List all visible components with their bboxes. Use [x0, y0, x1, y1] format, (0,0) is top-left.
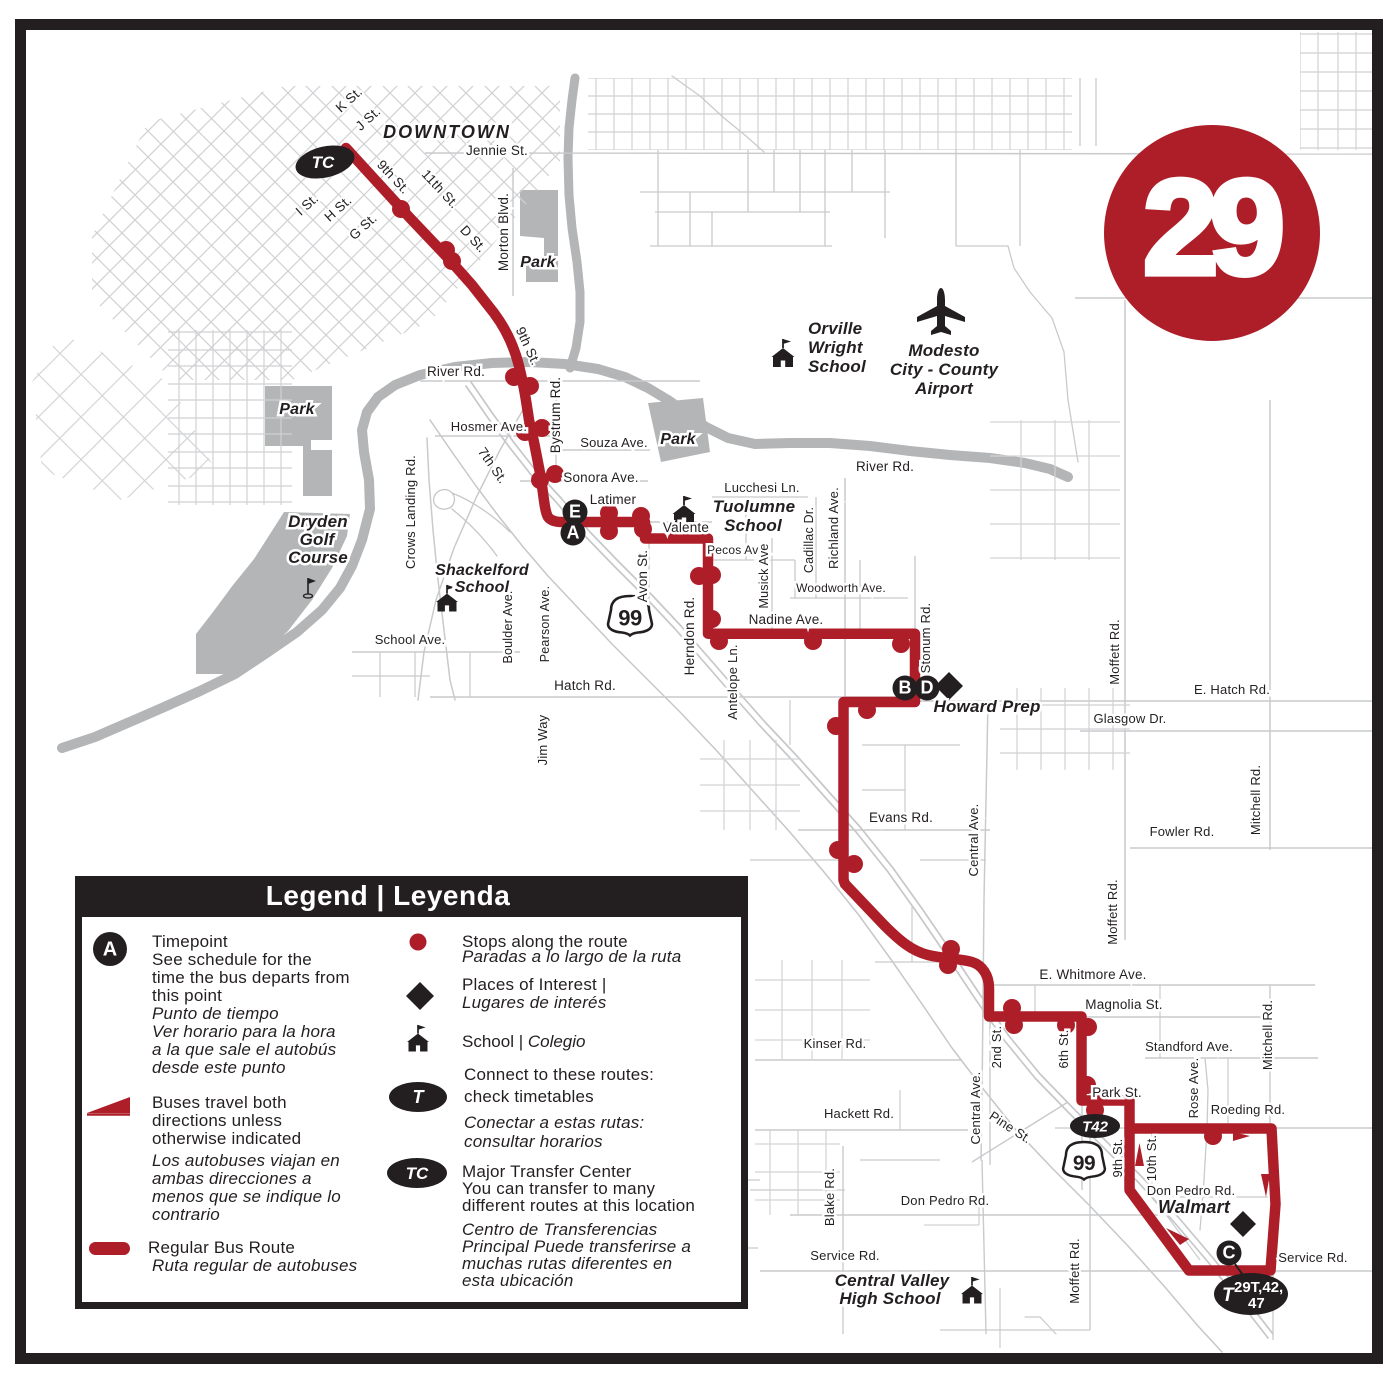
svg-text:Nadine Ave.: Nadine Ave.	[749, 612, 824, 627]
svg-text:Hosmer Ave.: Hosmer Ave.	[451, 419, 527, 434]
svg-text:Central Valley: Central Valley	[835, 1271, 951, 1290]
svg-text:Hackett Rd.: Hackett Rd.	[824, 1106, 894, 1121]
svg-text:Connect to these routes:: Connect to these routes:	[464, 1065, 654, 1084]
svg-text:A: A	[567, 522, 580, 542]
svg-text:Orville: Orville	[808, 319, 862, 338]
svg-text:Roeding Rd.: Roeding Rd.	[1211, 1102, 1285, 1117]
svg-text:Park: Park	[520, 254, 556, 271]
svg-text:directions unless: directions unless	[152, 1111, 282, 1130]
svg-text:Rose Ave.: Rose Ave.	[1186, 1058, 1201, 1119]
svg-text:check timetables: check timetables	[464, 1087, 594, 1106]
svg-text:otherwise indicated: otherwise indicated	[152, 1129, 301, 1148]
svg-text:High School: High School	[839, 1289, 941, 1308]
svg-text:Central Ave.: Central Ave.	[966, 804, 981, 877]
svg-text:29T,42,: 29T,42,	[1234, 1279, 1283, 1296]
svg-text:City - County: City - County	[890, 360, 1000, 379]
svg-text:Service Rd.: Service Rd.	[1278, 1250, 1347, 1265]
svg-text:School: School	[724, 516, 783, 535]
svg-text:Stonum Rd.: Stonum Rd.	[918, 603, 933, 674]
svg-text:Hatch Rd.: Hatch Rd.	[554, 678, 616, 693]
svg-text:Los autobuses viajan en: Los autobuses viajan en	[152, 1151, 340, 1170]
svg-text:Fowler Rd.: Fowler Rd.	[1150, 824, 1215, 839]
svg-text:contrario: contrario	[152, 1205, 220, 1224]
svg-text:School: School	[808, 357, 867, 376]
svg-text:Magnolia St.: Magnolia St.	[1085, 997, 1162, 1012]
svg-text:ambas direcciones a: ambas direcciones a	[152, 1169, 312, 1188]
svg-text:Punto de tiempo: Punto de tiempo	[152, 1004, 279, 1023]
svg-text:99: 99	[1073, 1152, 1095, 1175]
svg-text:Cadillac Dr.: Cadillac Dr.	[802, 507, 816, 573]
svg-text:Souza Ave.: Souza Ave.	[580, 435, 648, 450]
svg-text:Jim Way: Jim Way	[535, 714, 550, 765]
svg-text:desde este punto: desde este punto	[152, 1058, 286, 1077]
svg-text:consultar horarios: consultar horarios	[464, 1132, 603, 1151]
svg-text:Timepoint: Timepoint	[152, 932, 228, 951]
svg-text:Dryden: Dryden	[288, 512, 348, 531]
svg-text:E. Whitmore Ave.: E. Whitmore Ave.	[1039, 967, 1146, 982]
svg-text:29: 29	[1143, 153, 1280, 302]
svg-text:esta ubicación: esta ubicación	[462, 1271, 573, 1290]
svg-text:Legend | Leyenda: Legend | Leyenda	[266, 880, 511, 911]
svg-text:Airport: Airport	[914, 379, 974, 398]
svg-text:Central Ave.: Central Ave.	[968, 1072, 983, 1145]
svg-text:B: B	[899, 677, 912, 697]
svg-text:Wright: Wright	[808, 338, 864, 357]
svg-text:Tuolumne: Tuolumne	[713, 497, 796, 516]
svg-text:different routes at this locat: different routes at this location	[462, 1196, 695, 1215]
svg-text:2nd St.: 2nd St.	[989, 1026, 1004, 1069]
svg-text:Herndon Rd.: Herndon Rd.	[682, 597, 697, 676]
svg-text:Evans Rd.: Evans Rd.	[869, 810, 933, 825]
svg-text:Avon St.: Avon St.	[635, 550, 650, 602]
svg-text:Conectar a estas rutas:: Conectar a estas rutas:	[464, 1113, 644, 1132]
svg-text:School Ave.: School Ave.	[375, 632, 446, 647]
svg-text:Walmart: Walmart	[1158, 1197, 1231, 1217]
svg-text:Golf: Golf	[300, 530, 337, 549]
svg-text:47: 47	[1248, 1295, 1265, 1312]
svg-text:Jennie St.: Jennie St.	[466, 143, 528, 158]
svg-text:C: C	[1223, 1242, 1236, 1262]
svg-text:Blake Rd.: Blake Rd.	[822, 1168, 837, 1226]
svg-text:Latimer: Latimer	[590, 492, 637, 507]
svg-text:Don Pedro Rd.: Don Pedro Rd.	[901, 1193, 990, 1208]
svg-text:Kinser Rd.: Kinser Rd.	[804, 1036, 867, 1051]
svg-text:T42: T42	[1082, 1119, 1109, 1136]
svg-text:Park: Park	[279, 401, 315, 418]
svg-text:6th St.: 6th St.	[1056, 1030, 1071, 1069]
svg-text:Richland Ave.: Richland Ave.	[826, 487, 841, 569]
svg-text:Lucchesi Ln.: Lucchesi Ln.	[724, 480, 799, 495]
svg-text:TC: TC	[406, 1164, 429, 1183]
svg-text:99: 99	[618, 605, 642, 630]
svg-text:School | Colegio: School | Colegio	[462, 1032, 586, 1051]
svg-text:Glasgow Dr.: Glasgow Dr.	[1093, 711, 1166, 726]
svg-text:Park St.: Park St.	[1092, 1085, 1142, 1100]
svg-text:A: A	[103, 938, 117, 960]
svg-text:Crows Landing Rd.: Crows Landing Rd.	[403, 455, 418, 569]
svg-text:a la que sale el autobús: a la que sale el autobús	[152, 1040, 337, 1059]
svg-text:Places of Interest |: Places of Interest |	[462, 975, 606, 994]
svg-text:Buses travel both: Buses travel both	[152, 1093, 287, 1112]
svg-text:Sonora Ave.: Sonora Ave.	[563, 470, 639, 485]
svg-text:Don Pedro Rd.: Don Pedro Rd.	[1147, 1183, 1236, 1198]
svg-text:Ver horario para la hora: Ver horario para la hora	[152, 1022, 336, 1041]
svg-text:Mitchell Rd.: Mitchell Rd.	[1260, 1000, 1275, 1070]
svg-text:time the bus departs from: time the bus departs from	[152, 968, 350, 987]
svg-text:Modesto: Modesto	[908, 341, 979, 360]
svg-text:Bystrum Rd.: Bystrum Rd.	[548, 377, 563, 453]
svg-text:Moffett Rd.: Moffett Rd.	[1107, 619, 1122, 685]
svg-text:Moffett Rd.: Moffett Rd.	[1105, 879, 1120, 945]
svg-text:DOWNTOWN: DOWNTOWN	[383, 122, 511, 142]
svg-text:Antelope Ln.: Antelope Ln.	[725, 644, 740, 719]
svg-text:menos que se indique lo: menos que se indique lo	[152, 1187, 341, 1206]
svg-text:Standford Ave.: Standford Ave.	[1145, 1039, 1233, 1054]
svg-text:this point: this point	[152, 986, 222, 1005]
svg-text:River Rd.: River Rd.	[427, 364, 485, 379]
svg-text:Pearson Ave.: Pearson Ave.	[538, 586, 552, 663]
svg-text:Lugares de interés: Lugares de interés	[462, 993, 607, 1012]
svg-text:Mitchell Rd.: Mitchell Rd.	[1248, 765, 1263, 835]
svg-text:River Rd.: River Rd.	[856, 459, 914, 474]
svg-text:Course: Course	[288, 548, 348, 567]
svg-text:See schedule for the: See schedule for the	[152, 950, 312, 969]
svg-text:Woodworth Ave.: Woodworth Ave.	[796, 581, 886, 595]
svg-text:TC: TC	[312, 153, 335, 172]
svg-text:Regular Bus Route: Regular Bus Route	[148, 1238, 295, 1257]
svg-text:Ruta regular de autobuses: Ruta regular de autobuses	[152, 1256, 358, 1275]
svg-text:Boulder Ave.: Boulder Ave.	[501, 590, 515, 663]
svg-text:D: D	[921, 677, 934, 697]
svg-text:E: E	[569, 501, 581, 521]
svg-text:Park: Park	[660, 431, 696, 448]
svg-text:Howard Prep: Howard Prep	[933, 697, 1040, 716]
svg-text:Service Rd.: Service Rd.	[810, 1248, 879, 1263]
svg-text:Shackelford: Shackelford	[435, 562, 530, 579]
svg-text:Musick Ave: Musick Ave	[757, 544, 771, 609]
svg-text:Valente: Valente	[663, 520, 709, 535]
svg-text:E. Hatch Rd.: E. Hatch Rd.	[1194, 682, 1270, 697]
svg-text:10th St.: 10th St.	[1144, 1135, 1159, 1181]
svg-text:Moffett Rd.: Moffett Rd.	[1067, 1238, 1082, 1304]
svg-text:9th St.: 9th St.	[1110, 1139, 1125, 1178]
svg-text:Paradas a lo largo de la ruta: Paradas a lo largo de la ruta	[462, 947, 681, 966]
svg-text:Morton Blvd.: Morton Blvd.	[496, 193, 511, 271]
